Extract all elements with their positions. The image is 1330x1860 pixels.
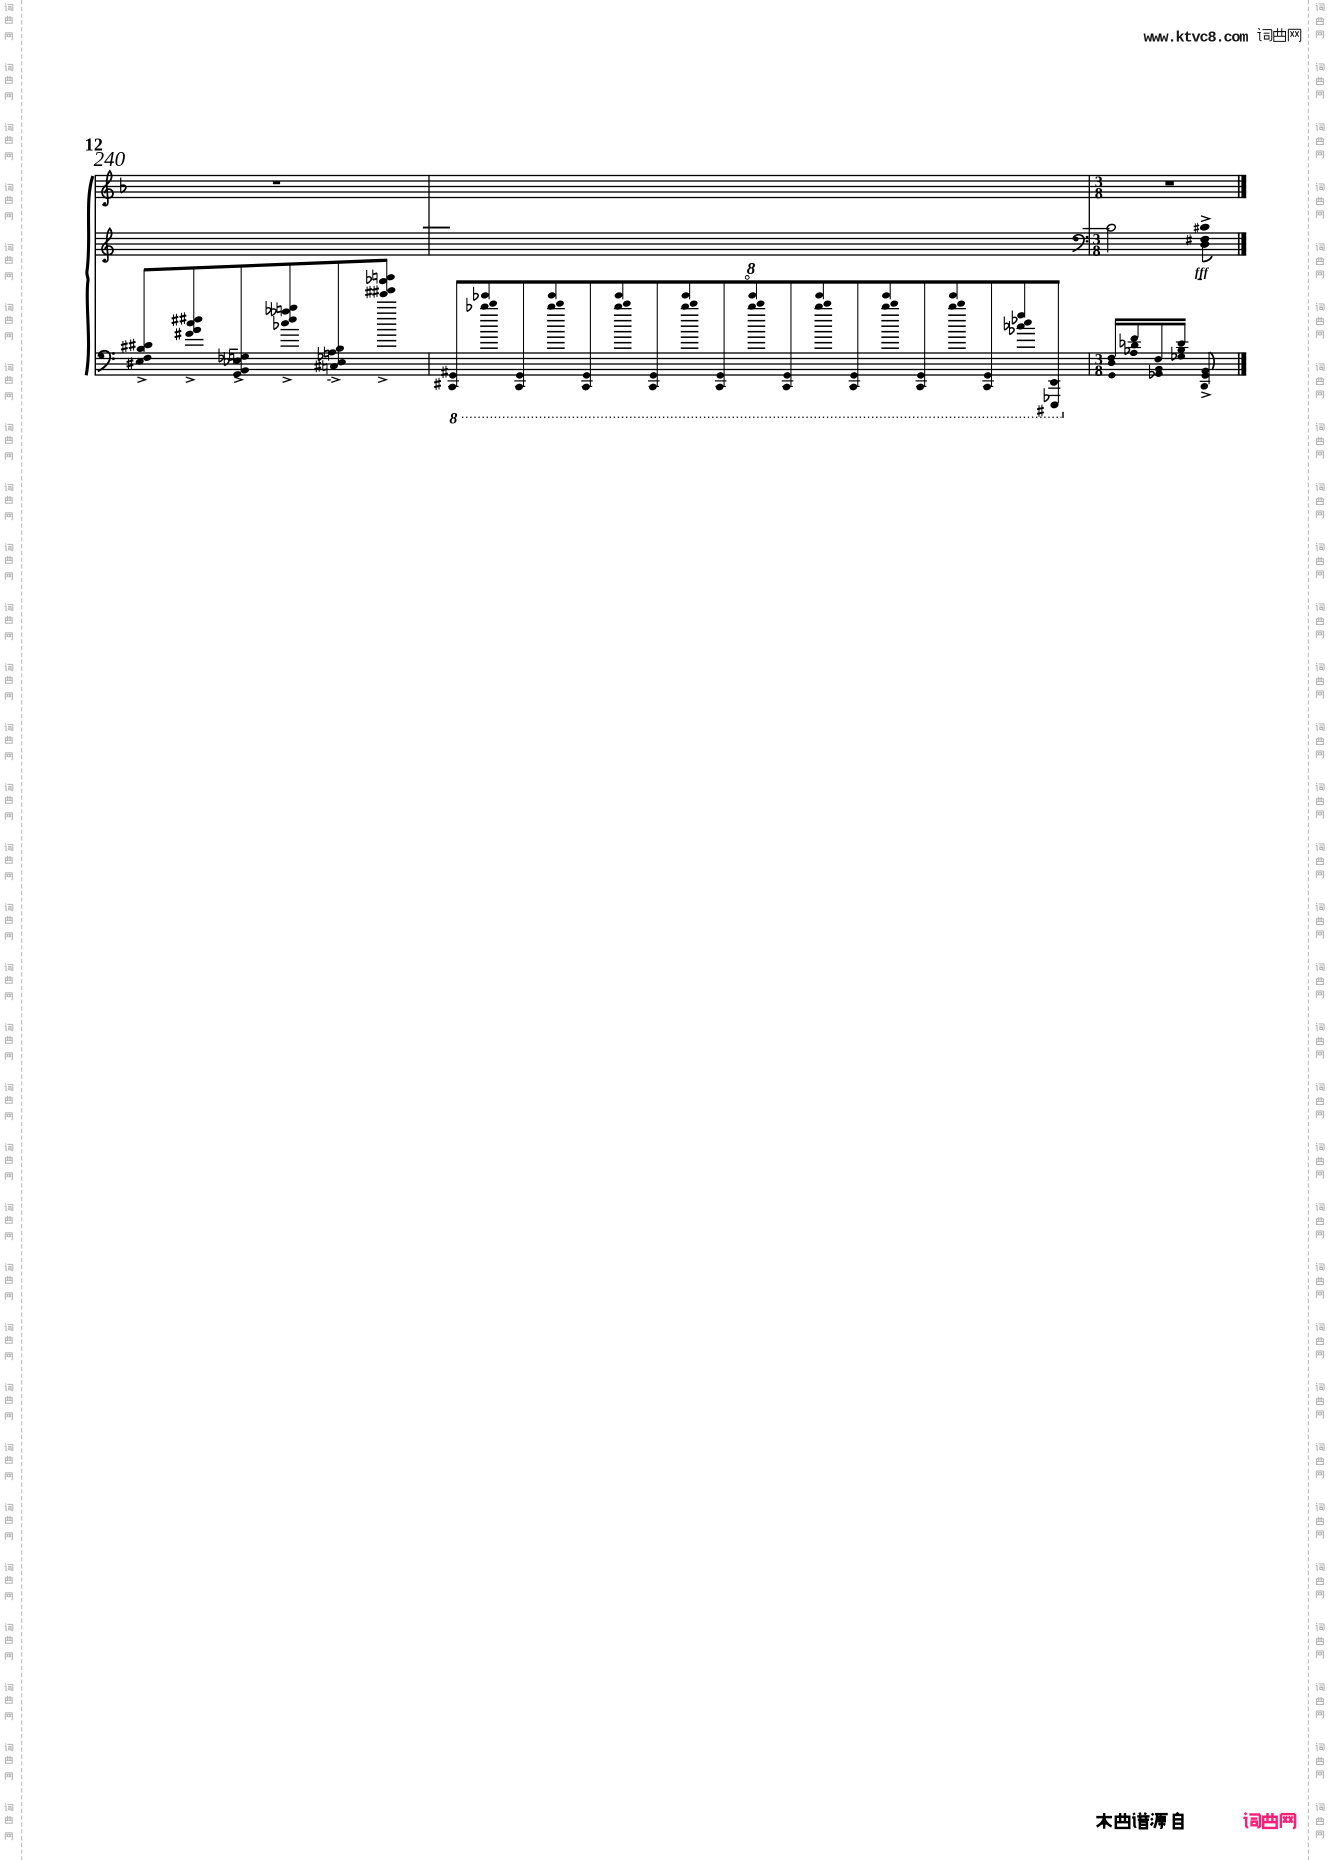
svg-text:8: 8 [449,411,457,428]
svg-text:8: 8 [1095,184,1103,202]
svg-text:www.ktvc8.com: www.ktvc8.com [1144,29,1249,47]
svg-text:8: 8 [747,259,756,278]
svg-text:fff: fff [1195,266,1210,280]
svg-text:8: 8 [1095,362,1103,380]
svg-text:240: 240 [94,147,126,171]
svg-text:8: 8 [1093,242,1101,260]
